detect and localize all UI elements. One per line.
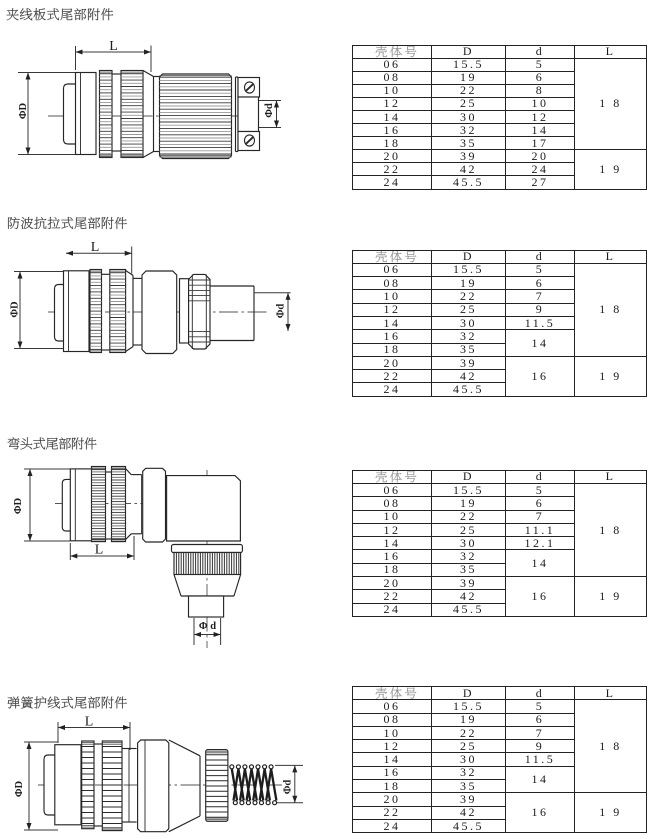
svg-text:ΦD: ΦD bbox=[14, 780, 25, 797]
svg-text:ΦD: ΦD bbox=[18, 102, 29, 119]
svg-text:ΦD: ΦD bbox=[9, 301, 20, 318]
svg-text:Φ d: Φ d bbox=[199, 621, 216, 632]
svg-text:L: L bbox=[91, 240, 100, 255]
svg-text:L: L bbox=[109, 39, 118, 54]
svg-text:Φd: Φd bbox=[282, 780, 293, 795]
svg-text:Φd: Φd bbox=[264, 103, 275, 118]
svg-text:L: L bbox=[85, 715, 94, 730]
svg-text:Φd: Φd bbox=[275, 304, 286, 319]
svg-text:L: L bbox=[95, 543, 104, 558]
svg-text:ΦD: ΦD bbox=[13, 497, 24, 514]
